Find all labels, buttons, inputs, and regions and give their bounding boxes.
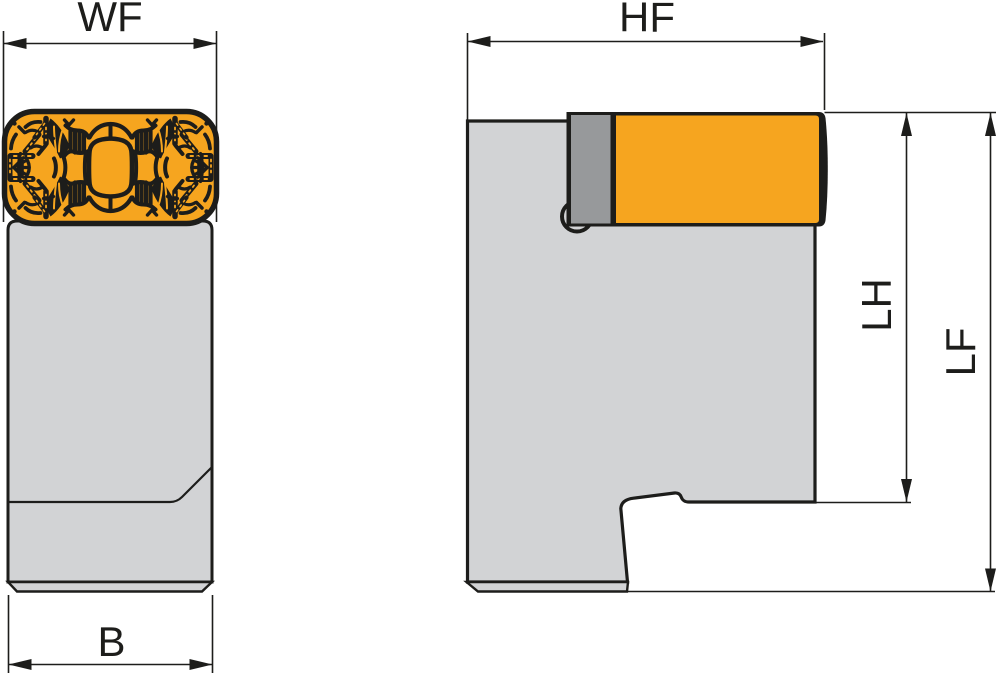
svg-text:WF: WF [77,0,142,40]
svg-text:LH: LH [853,278,900,332]
svg-text:B: B [97,618,125,665]
svg-text:LF: LF [937,327,984,376]
svg-text:HF: HF [619,0,675,41]
